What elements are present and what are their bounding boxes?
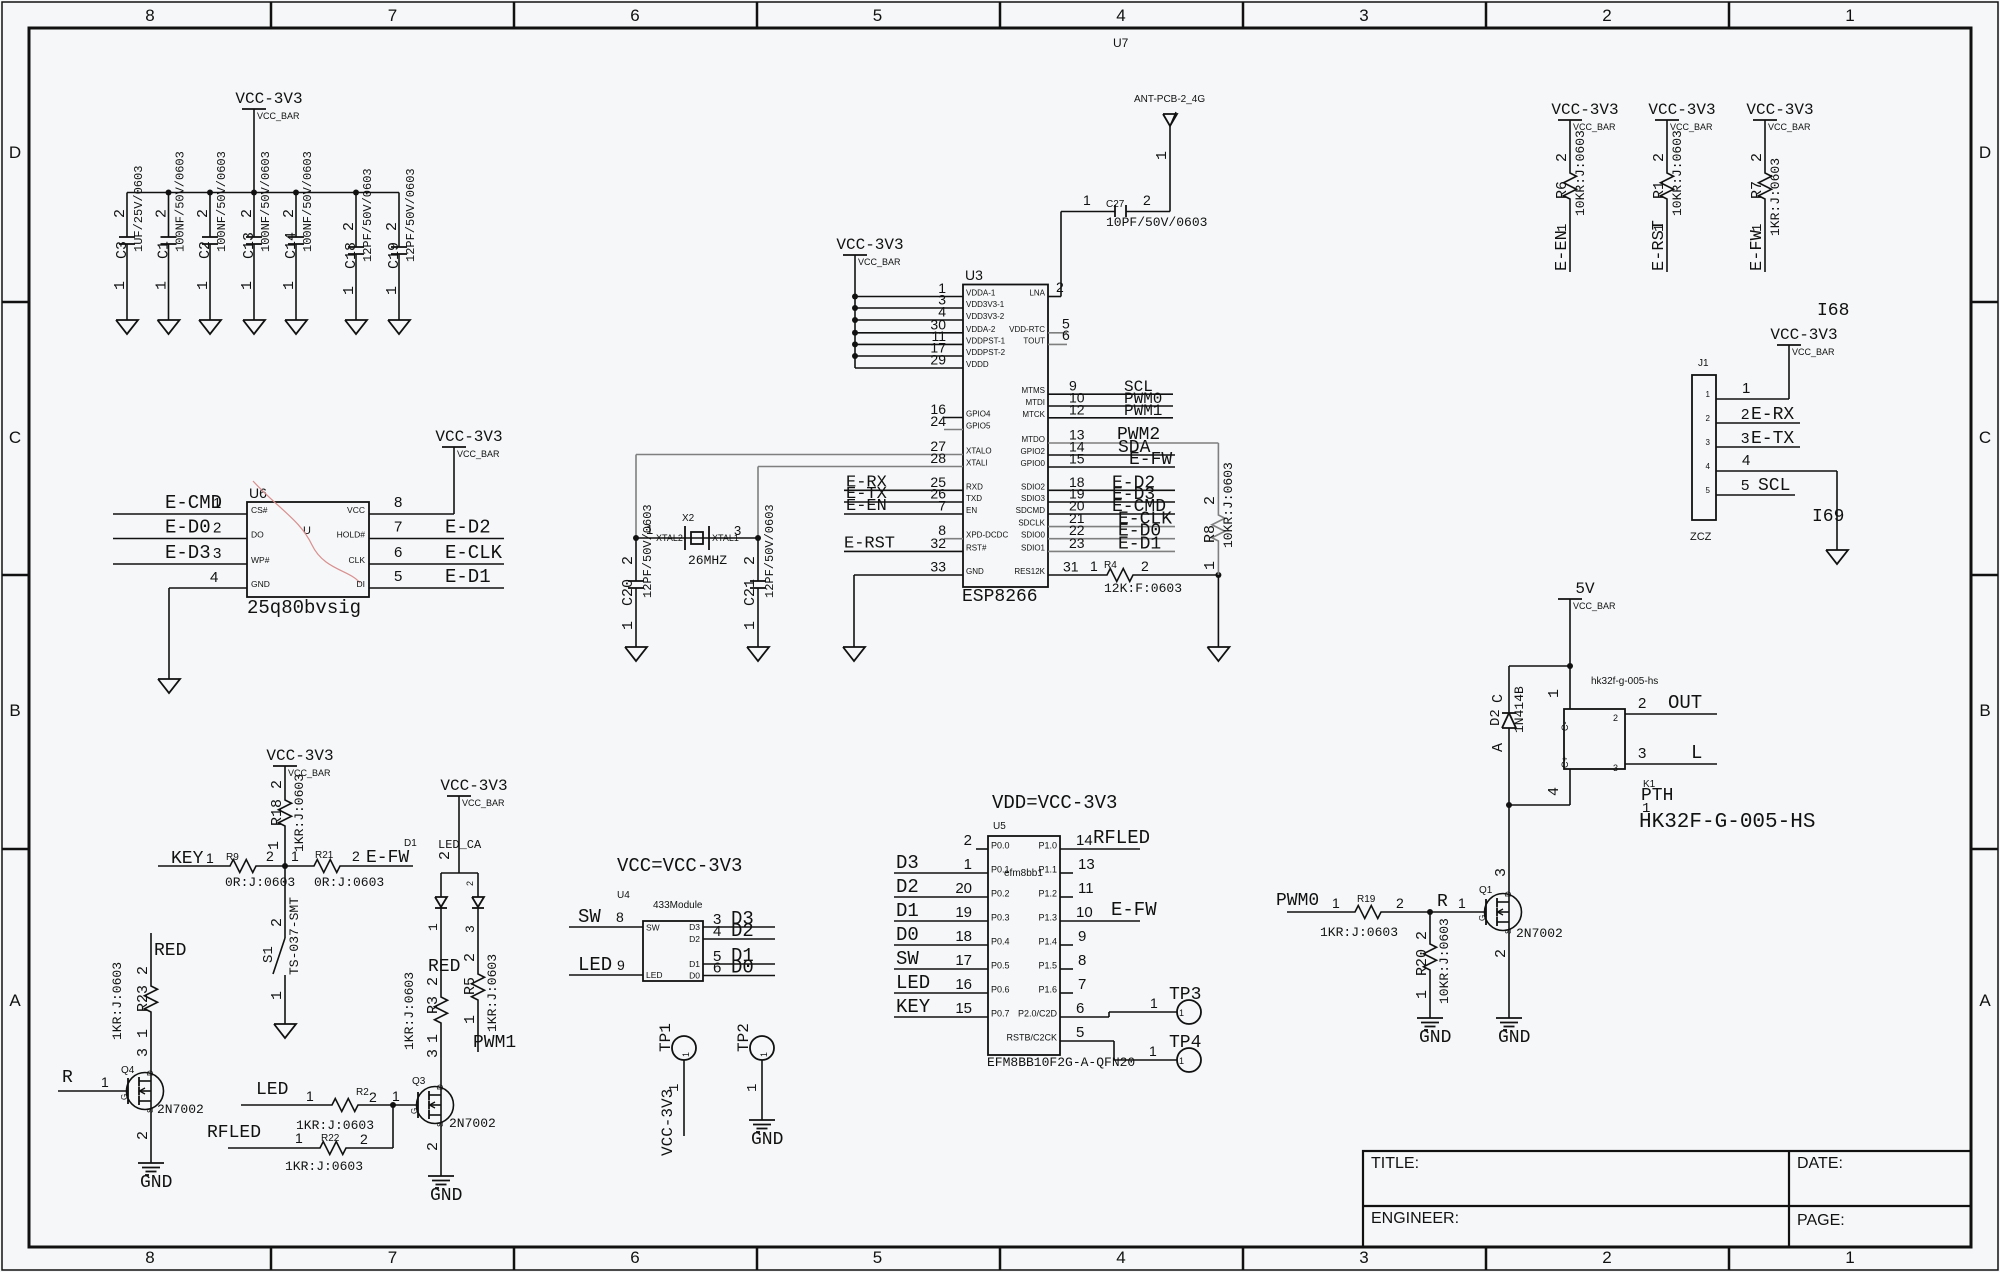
svg-text:C21: C21 (742, 579, 759, 606)
svg-text:3: 3 (425, 1049, 442, 1058)
svg-text:C1: C1 (156, 241, 173, 259)
svg-text:1: 1 (742, 621, 759, 630)
svg-text:3: 3 (1359, 6, 1368, 25)
svg-text:ANT-PCB-2_4G: ANT-PCB-2_4G (1134, 94, 1205, 105)
svg-text:1: 1 (269, 991, 286, 1000)
svg-text:GPIO0: GPIO0 (1021, 459, 1046, 468)
svg-text:10: 10 (1076, 904, 1093, 921)
svg-text:23: 23 (1069, 535, 1085, 551)
svg-text:RED: RED (154, 941, 186, 961)
svg-text:5: 5 (1706, 486, 1711, 495)
svg-text:E-FW: E-FW (1748, 229, 1767, 271)
svg-text:VCC-3V3: VCC-3V3 (266, 747, 333, 765)
svg-text:P0.4: P0.4 (991, 937, 1010, 947)
svg-text:6: 6 (1062, 327, 1070, 343)
svg-text:VCC_BAR: VCC_BAR (858, 257, 901, 267)
svg-text:E-D0: E-D0 (165, 517, 211, 539)
svg-text:R23: R23 (135, 985, 152, 1012)
svg-text:hk32f-g-005-hs: hk32f-g-005-hs (1591, 676, 1658, 687)
svg-text:2: 2 (425, 1142, 442, 1151)
svg-text:2: 2 (135, 966, 152, 975)
svg-text:R4: R4 (1104, 560, 1117, 571)
svg-text:C27: C27 (1106, 199, 1125, 210)
svg-text:1: 1 (341, 286, 358, 295)
svg-text:C14: C14 (283, 232, 300, 259)
svg-text:4: 4 (1116, 1248, 1125, 1267)
svg-text:EFM8BB10F2G-A-QFN20: EFM8BB10F2G-A-QFN20 (987, 1055, 1135, 1070)
svg-text:E-TX: E-TX (1751, 429, 1794, 449)
svg-text:SW: SW (646, 923, 660, 933)
svg-text:RXD: RXD (966, 482, 983, 491)
svg-text:DO: DO (251, 530, 264, 540)
svg-text:2: 2 (1706, 414, 1711, 423)
svg-text:TP4: TP4 (1169, 1033, 1201, 1053)
svg-text:19: 19 (955, 904, 972, 921)
svg-text:12PF/50V/0603: 12PF/50V/0603 (404, 168, 418, 262)
svg-text:D0: D0 (689, 971, 700, 981)
svg-text:R: R (62, 1068, 73, 1088)
svg-text:1: 1 (392, 1088, 400, 1104)
svg-text:4: 4 (1116, 6, 1125, 25)
svg-text:2: 2 (369, 1089, 377, 1105)
svg-text:1: 1 (425, 1034, 442, 1043)
svg-text:VDDPST-1: VDDPST-1 (966, 336, 1006, 345)
svg-text:2: 2 (154, 209, 171, 218)
svg-text:1: 1 (384, 286, 401, 295)
svg-text:8: 8 (394, 494, 402, 511)
svg-text:VCC-3V3: VCC-3V3 (1770, 326, 1837, 344)
svg-text:5: 5 (394, 568, 402, 585)
svg-text:OUT: OUT (1668, 692, 1702, 714)
svg-text:1: 1 (1546, 689, 1563, 698)
svg-text:U4: U4 (617, 890, 630, 901)
svg-text:L: L (1691, 742, 1702, 764)
svg-text:7: 7 (938, 498, 946, 514)
svg-text:SDIO1: SDIO1 (1021, 543, 1046, 552)
svg-text:P0.6: P0.6 (991, 985, 1010, 995)
svg-text:1: 1 (1845, 6, 1854, 25)
svg-text:S1: S1 (261, 946, 277, 963)
svg-text:TOUT: TOUT (1023, 336, 1045, 345)
svg-text:P0.5: P0.5 (991, 961, 1010, 971)
svg-text:P0.2: P0.2 (991, 889, 1010, 899)
svg-text:VDDPST-2: VDDPST-2 (966, 348, 1006, 357)
svg-text:1: 1 (426, 923, 441, 931)
svg-text:1: 1 (281, 281, 298, 290)
svg-text:2: 2 (1493, 949, 1510, 958)
svg-text:8: 8 (616, 909, 624, 925)
svg-text:SDIO0: SDIO0 (1021, 531, 1046, 540)
svg-text:G: G (410, 1108, 419, 1114)
svg-text:1: 1 (154, 281, 171, 290)
svg-text:U5: U5 (993, 821, 1006, 832)
svg-text:SW: SW (896, 948, 919, 970)
svg-text:P1.5: P1.5 (1038, 961, 1057, 971)
svg-text:VDDA-1: VDDA-1 (966, 289, 996, 298)
svg-text:SCL: SCL (1758, 476, 1790, 496)
svg-text:XTALO: XTALO (966, 447, 992, 456)
svg-text:C20: C20 (620, 579, 637, 606)
svg-text:1UF/25V/0603: 1UF/25V/0603 (132, 166, 146, 252)
svg-text:S: S (146, 1108, 155, 1113)
svg-text:1KR:J:0603: 1KR:J:0603 (285, 1159, 363, 1174)
svg-text:1: 1 (206, 850, 214, 866)
svg-text:1: 1 (306, 1088, 314, 1104)
svg-text:1: 1 (1845, 1248, 1854, 1267)
svg-text:7: 7 (388, 1248, 397, 1267)
svg-text:VCC=VCC-3V3: VCC=VCC-3V3 (617, 855, 742, 877)
svg-text:RFLED: RFLED (207, 1123, 261, 1143)
svg-text:VCC_BAR: VCC_BAR (1573, 601, 1616, 611)
svg-text:MTCK: MTCK (1022, 410, 1045, 419)
svg-text:D3: D3 (689, 922, 700, 932)
svg-text:24: 24 (930, 413, 946, 429)
svg-text:VDD3V3-1: VDD3V3-1 (966, 300, 1005, 309)
svg-text:efm8bb1: efm8bb1 (1004, 868, 1043, 879)
svg-text:A: A (1979, 991, 1991, 1010)
svg-text:2: 2 (1638, 695, 1646, 712)
svg-text:10KR:J:0603: 10KR:J:0603 (1221, 462, 1236, 548)
svg-text:1: 1 (195, 281, 212, 290)
svg-text:ESP8266: ESP8266 (962, 587, 1038, 607)
svg-text:R22: R22 (321, 1133, 340, 1144)
svg-text:1KR:J:0603: 1KR:J:0603 (1320, 925, 1398, 940)
svg-text:1KR:J:0603: 1KR:J:0603 (292, 774, 307, 852)
svg-text:1: 1 (1458, 895, 1466, 911)
svg-text:C-: C- (1560, 722, 1570, 732)
svg-text:1: 1 (964, 856, 972, 873)
svg-text:D: D (436, 1084, 445, 1090)
svg-text:1: 1 (1555, 224, 1571, 232)
svg-text:100NF/50V/0603: 100NF/50V/0603 (215, 151, 229, 252)
svg-text:2: 2 (135, 1131, 152, 1140)
svg-text:GND: GND (751, 1130, 783, 1150)
svg-text:2: 2 (239, 209, 256, 218)
svg-text:1: 1 (681, 1052, 691, 1057)
svg-text:11: 11 (1078, 880, 1094, 897)
svg-text:D2: D2 (896, 876, 919, 898)
svg-text:1: 1 (759, 1052, 769, 1057)
svg-text:5: 5 (873, 1248, 882, 1267)
svg-text:2: 2 (1602, 1248, 1611, 1267)
svg-text:4: 4 (713, 923, 721, 940)
svg-text:RST#: RST# (966, 543, 987, 552)
svg-text:VCC-3V3: VCC-3V3 (235, 90, 302, 108)
svg-text:TITLE:: TITLE: (1371, 1155, 1419, 1172)
svg-text:1: 1 (239, 281, 256, 290)
svg-text:Q3: Q3 (412, 1076, 426, 1087)
svg-text:R7: R7 (1749, 181, 1766, 199)
svg-text:VDDD: VDDD (966, 360, 989, 369)
svg-text:P0.7: P0.7 (991, 1009, 1010, 1019)
svg-text:2: 2 (1651, 153, 1668, 162)
svg-text:TP3: TP3 (1169, 985, 1201, 1005)
svg-text:R21: R21 (315, 850, 334, 861)
svg-text:7: 7 (1078, 976, 1086, 993)
svg-text:1: 1 (745, 1084, 761, 1092)
svg-text:MTDI: MTDI (1025, 398, 1045, 407)
svg-text:VCC-3V3: VCC-3V3 (1746, 101, 1813, 119)
svg-text:MTMS: MTMS (1021, 386, 1045, 395)
svg-text:P0.0: P0.0 (991, 841, 1010, 851)
svg-text:2: 2 (195, 209, 212, 218)
svg-text:XPD-DCDC: XPD-DCDC (966, 531, 1008, 540)
svg-text:1KR:J:0603: 1KR:J:0603 (110, 962, 125, 1040)
svg-text:15: 15 (1069, 451, 1085, 467)
svg-text:PWM0: PWM0 (1276, 891, 1319, 911)
svg-text:R9: R9 (226, 852, 239, 863)
svg-text:12K:F:0603: 12K:F:0603 (1104, 581, 1182, 596)
svg-text:1: 1 (135, 1029, 152, 1038)
svg-text:3: 3 (1613, 763, 1618, 773)
svg-text:0R:J:0603: 0R:J:0603 (314, 875, 384, 890)
svg-text:2: 2 (281, 209, 298, 218)
svg-text:1N414B: 1N414B (1512, 686, 1527, 733)
svg-text:VCC_BAR: VCC_BAR (1792, 347, 1835, 357)
svg-text:RFLED: RFLED (1093, 827, 1150, 849)
svg-text:1KR:J:0603: 1KR:J:0603 (1768, 158, 1783, 236)
svg-text:2: 2 (360, 1131, 368, 1147)
svg-text:LED: LED (896, 972, 930, 994)
svg-text:2: 2 (437, 851, 454, 860)
svg-text:D1: D1 (404, 838, 417, 849)
svg-text:15: 15 (955, 1000, 972, 1017)
svg-text:2: 2 (213, 520, 221, 537)
svg-text:12: 12 (1069, 401, 1085, 417)
svg-text:2: 2 (462, 953, 479, 962)
svg-text:EN: EN (966, 506, 977, 515)
svg-text:MTDO: MTDO (1021, 435, 1045, 444)
svg-text:VCC_BAR: VCC_BAR (257, 111, 300, 121)
svg-text:D3: D3 (896, 852, 919, 874)
svg-text:ENGINEER:: ENGINEER: (1371, 1210, 1459, 1227)
svg-text:1: 1 (1332, 895, 1340, 911)
svg-text:10PF/50V/0603: 10PF/50V/0603 (1106, 215, 1207, 230)
svg-text:P1.1: P1.1 (1038, 865, 1057, 875)
svg-text:16: 16 (955, 976, 972, 993)
svg-text:E-D1: E-D1 (445, 566, 491, 588)
svg-text:Q1: Q1 (1479, 885, 1493, 896)
svg-text:1: 1 (620, 621, 637, 630)
svg-text:E-D3: E-D3 (165, 542, 211, 564)
svg-text:10KR:J:0603: 10KR:J:0603 (1437, 918, 1452, 1004)
svg-text:C: C (1490, 694, 1507, 703)
svg-text:LED: LED (578, 954, 612, 976)
svg-text:P1.2: P1.2 (1038, 889, 1057, 899)
svg-text:KEY: KEY (896, 996, 931, 1018)
svg-text:28: 28 (930, 450, 946, 466)
svg-text:D1: D1 (896, 900, 919, 922)
svg-text:D1: D1 (689, 959, 700, 969)
svg-text:HOLD#: HOLD# (337, 530, 366, 540)
svg-text:C: C (1979, 428, 1991, 447)
svg-text:12PF/50V/0603: 12PF/50V/0603 (763, 504, 777, 598)
svg-text:VDD=VCC-3V3: VDD=VCC-3V3 (992, 792, 1117, 814)
svg-text:2: 2 (1143, 192, 1151, 208)
svg-text:2: 2 (266, 848, 274, 864)
svg-text:E-FW: E-FW (1111, 899, 1157, 921)
svg-text:8: 8 (1078, 952, 1086, 969)
svg-text:5: 5 (1741, 477, 1749, 494)
svg-text:9: 9 (617, 957, 625, 973)
svg-text:R1: R1 (1651, 181, 1668, 199)
svg-text:1KR:J:0603: 1KR:J:0603 (402, 972, 417, 1050)
svg-text:26MHZ: 26MHZ (688, 553, 727, 568)
svg-text:1: 1 (462, 1015, 479, 1024)
svg-text:DI: DI (357, 579, 366, 589)
svg-text:VCC-3V3: VCC-3V3 (659, 1089, 677, 1156)
svg-text:GND: GND (1419, 1028, 1451, 1048)
svg-text:3: 3 (1359, 1248, 1368, 1267)
svg-text:3: 3 (734, 523, 741, 538)
svg-text:3: 3 (1741, 430, 1749, 447)
svg-text:2: 2 (1414, 931, 1431, 940)
svg-text:2: 2 (1613, 713, 1618, 723)
svg-text:17: 17 (955, 952, 972, 969)
svg-text:E-CLK: E-CLK (445, 542, 503, 564)
svg-text:WP#: WP# (251, 555, 270, 565)
svg-text:VCC: VCC (347, 505, 365, 515)
svg-text:GND: GND (430, 1186, 462, 1206)
svg-text:VCC_BAR: VCC_BAR (1768, 122, 1811, 132)
svg-text:1: 1 (1154, 151, 1171, 160)
svg-text:VCC_BAR: VCC_BAR (462, 798, 505, 808)
svg-text:E-FW: E-FW (1129, 450, 1172, 470)
svg-text:D: D (1979, 143, 1991, 162)
svg-text:1: 1 (291, 848, 299, 864)
svg-text:PWM1: PWM1 (1124, 402, 1162, 420)
svg-text:D0: D0 (896, 924, 919, 946)
svg-text:1: 1 (1706, 390, 1711, 399)
svg-text:SDCLK: SDCLK (1018, 519, 1045, 528)
svg-text:14: 14 (1076, 832, 1093, 849)
svg-text:E-D1: E-D1 (1118, 534, 1161, 554)
svg-text:2: 2 (341, 222, 358, 231)
svg-text:D: D (9, 143, 21, 162)
svg-text:3: 3 (1493, 868, 1510, 877)
svg-text:18: 18 (955, 928, 972, 945)
svg-text:SDIO3: SDIO3 (1021, 494, 1046, 503)
svg-text:LED: LED (256, 1080, 288, 1100)
svg-text:P1.3: P1.3 (1038, 913, 1057, 923)
svg-text:1: 1 (1742, 380, 1750, 397)
svg-text:6: 6 (394, 544, 402, 561)
svg-text:D2: D2 (1488, 709, 1504, 726)
svg-text:CS#: CS# (251, 505, 268, 515)
svg-text:4: 4 (1742, 452, 1750, 469)
svg-text:6: 6 (713, 960, 721, 977)
svg-text:5: 5 (873, 6, 882, 25)
svg-text:R5: R5 (462, 977, 479, 995)
svg-text:1: 1 (112, 281, 129, 290)
svg-text:GPIO5: GPIO5 (966, 422, 991, 431)
svg-text:G: G (1478, 915, 1487, 921)
svg-text:E-FW: E-FW (366, 848, 409, 868)
svg-text:X2: X2 (682, 513, 695, 524)
svg-text:3: 3 (1638, 745, 1646, 762)
svg-text:VDD3V3-2: VDD3V3-2 (966, 312, 1005, 321)
svg-text:R2: R2 (356, 1087, 369, 1098)
svg-text:C13: C13 (241, 232, 258, 259)
svg-text:GPIO2: GPIO2 (1021, 447, 1046, 456)
svg-text:1: 1 (1149, 1043, 1157, 1059)
svg-text:1: 1 (1414, 990, 1431, 999)
svg-text:VCC-3V3: VCC-3V3 (1648, 101, 1715, 119)
svg-text:R8: R8 (1202, 525, 1219, 543)
svg-text:32: 32 (930, 535, 946, 551)
svg-text:2: 2 (1056, 279, 1064, 295)
svg-text:VCC-3V3: VCC-3V3 (440, 777, 507, 795)
svg-text:29: 29 (930, 352, 946, 368)
svg-text:P1.0: P1.0 (1038, 841, 1057, 851)
svg-text:3: 3 (135, 1048, 152, 1057)
svg-text:33: 33 (930, 559, 946, 575)
svg-text:2: 2 (1396, 895, 1404, 911)
svg-text:1: 1 (1090, 558, 1098, 574)
svg-text:R3: R3 (425, 996, 442, 1014)
svg-text:2: 2 (269, 918, 286, 927)
svg-text:SDCMD: SDCMD (1016, 506, 1046, 515)
svg-text:6: 6 (630, 1248, 639, 1267)
svg-text:VCC-3V3: VCC-3V3 (836, 236, 903, 254)
svg-text:1: 1 (213, 495, 221, 512)
svg-text:RSTB/C2CK: RSTB/C2CK (1006, 1033, 1057, 1043)
svg-text:100NF/50V/0603: 100NF/50V/0603 (301, 151, 315, 252)
svg-text:E-EN: E-EN (846, 497, 887, 516)
svg-text:PWM1: PWM1 (473, 1033, 516, 1053)
svg-text:1: 1 (1179, 1008, 1184, 1018)
svg-text:CLK: CLK (348, 555, 365, 565)
svg-text:2: 2 (352, 848, 360, 864)
svg-text:13: 13 (1078, 856, 1095, 873)
svg-text:C19: C19 (386, 242, 403, 269)
svg-text:TP2: TP2 (735, 1023, 753, 1052)
svg-text:VCC_BAR: VCC_BAR (457, 449, 500, 459)
svg-text:10KR:J:0603: 10KR:J:0603 (1670, 130, 1685, 216)
svg-text:1: 1 (1150, 995, 1158, 1011)
svg-text:A: A (1490, 743, 1507, 752)
svg-text:LNA: LNA (1029, 289, 1045, 298)
svg-text:SW: SW (578, 906, 601, 928)
svg-text:G: G (120, 1094, 129, 1100)
svg-text:C3: C3 (114, 241, 131, 259)
svg-text:D2: D2 (731, 920, 754, 942)
svg-text:U3: U3 (965, 267, 983, 283)
svg-text:D: D (1504, 891, 1513, 897)
svg-text:5: 5 (1076, 1024, 1084, 1041)
svg-text:TXD: TXD (966, 494, 982, 503)
svg-text:C: C (9, 428, 21, 447)
svg-text:E-EN: E-EN (1553, 230, 1572, 271)
svg-text:2: 2 (620, 556, 637, 565)
svg-text:6: 6 (1076, 1000, 1084, 1017)
svg-text:TP1: TP1 (657, 1023, 675, 1052)
svg-text:B: B (9, 701, 20, 720)
svg-text:2N7002: 2N7002 (1516, 926, 1563, 941)
svg-text:2: 2 (1741, 406, 1749, 423)
svg-text:1: 1 (1750, 224, 1766, 232)
svg-text:2: 2 (1554, 153, 1571, 162)
svg-text:1: 1 (295, 1130, 303, 1146)
svg-text:VDDA-2: VDDA-2 (966, 325, 996, 334)
svg-text:2: 2 (1141, 558, 1149, 574)
svg-text:E-RST: E-RST (844, 534, 895, 553)
svg-text:31: 31 (1063, 559, 1079, 575)
svg-text:P0.3: P0.3 (991, 913, 1010, 923)
svg-text:E-RX: E-RX (1751, 405, 1794, 425)
svg-text:XTAL2: XTAL2 (656, 533, 683, 543)
svg-text:R19: R19 (1357, 894, 1376, 905)
